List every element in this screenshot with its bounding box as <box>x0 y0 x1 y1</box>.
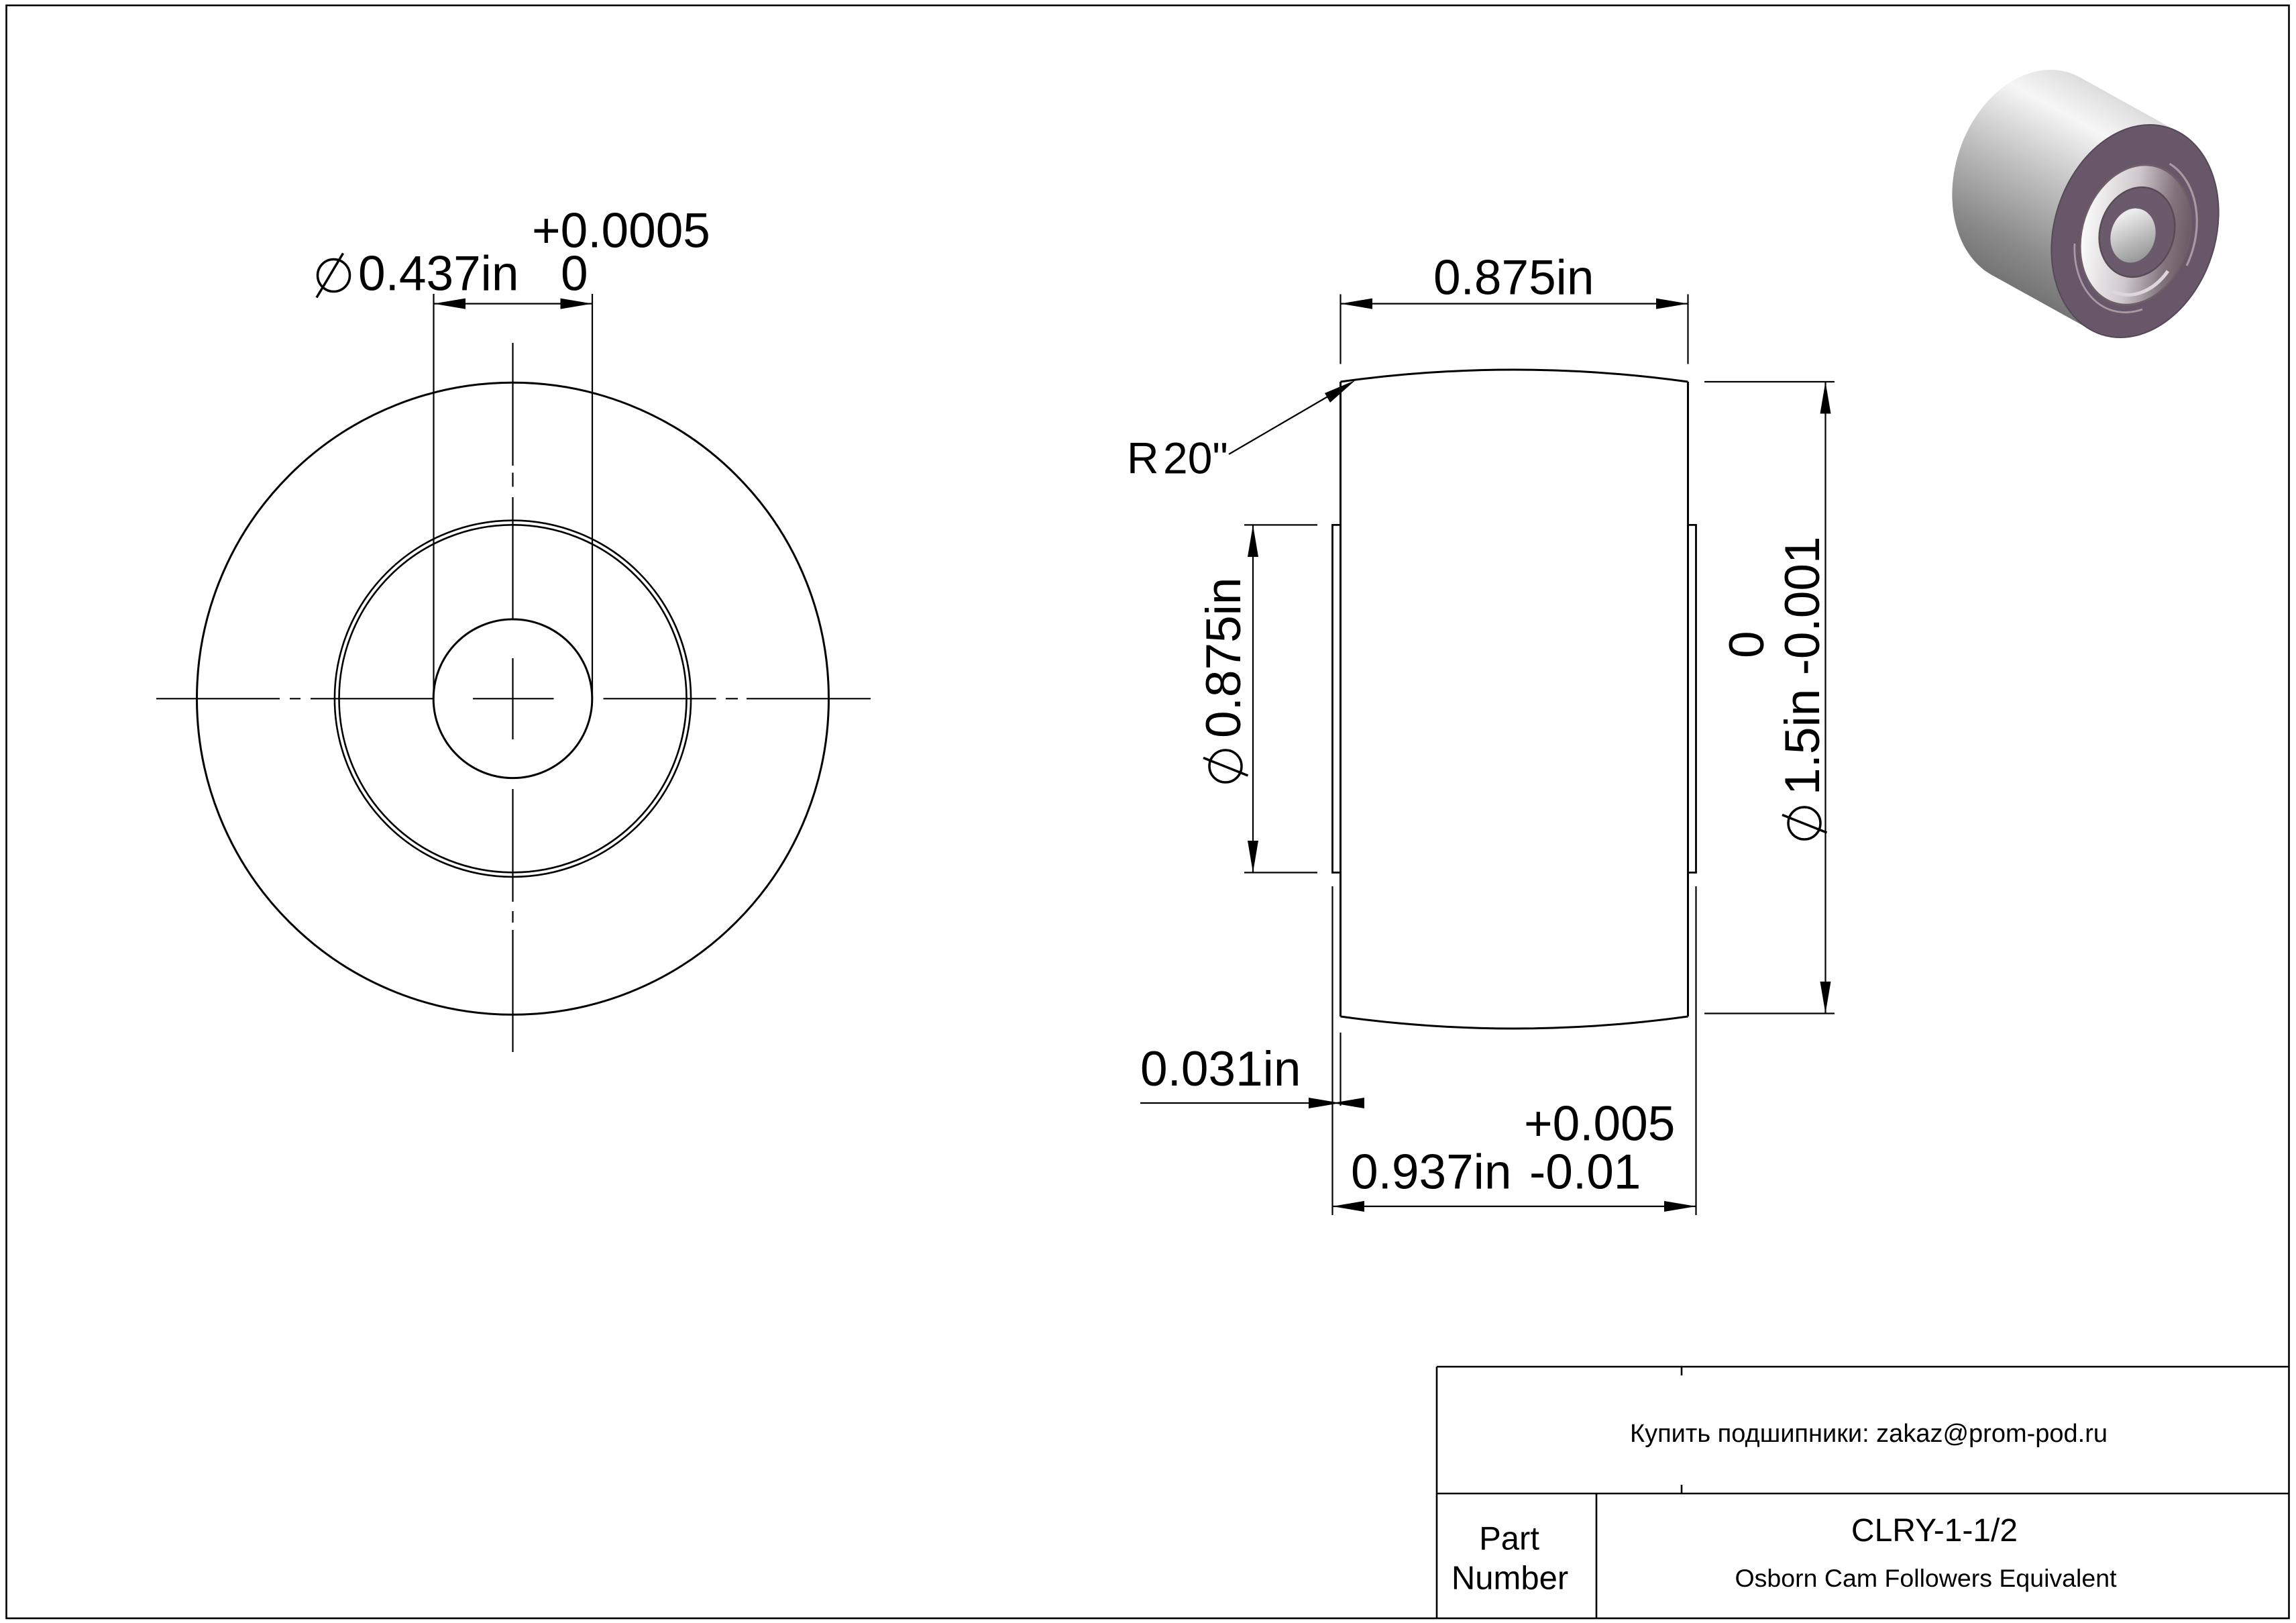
svg-text:0: 0 <box>1720 631 1774 658</box>
svg-text:CLRY-1-1/2: CLRY-1-1/2 <box>1851 1513 2018 1549</box>
svg-text:Купить подшипники: zakaz@prom-: Купить подшипники: zakaz@prom-pod.ru <box>1630 1420 2108 1448</box>
svg-text:0.875in: 0.875in <box>1197 578 1251 739</box>
svg-text:20": 20" <box>1163 433 1228 483</box>
svg-text:0.875in: 0.875in <box>1433 251 1594 305</box>
svg-text:-0.01: -0.01 <box>1529 1145 1641 1199</box>
svg-text:Osborn Cam Followers Equivalen: Osborn Cam Followers Equivalent <box>1735 1564 2118 1592</box>
svg-text:+0.0005: +0.0005 <box>532 203 710 258</box>
svg-text:Number: Number <box>1452 1561 1568 1597</box>
svg-text:0.031in: 0.031in <box>1140 1042 1301 1096</box>
svg-text:0.437in: 0.437in <box>358 247 519 301</box>
svg-text:R: R <box>1127 433 1159 483</box>
svg-text:1.5in -0.001: 1.5in -0.001 <box>1775 536 1830 795</box>
svg-text:Part: Part <box>1479 1521 1539 1557</box>
svg-text:0: 0 <box>561 247 588 301</box>
svg-text:+0.005: +0.005 <box>1524 1097 1675 1151</box>
svg-text:0.937in: 0.937in <box>1351 1145 1512 1199</box>
